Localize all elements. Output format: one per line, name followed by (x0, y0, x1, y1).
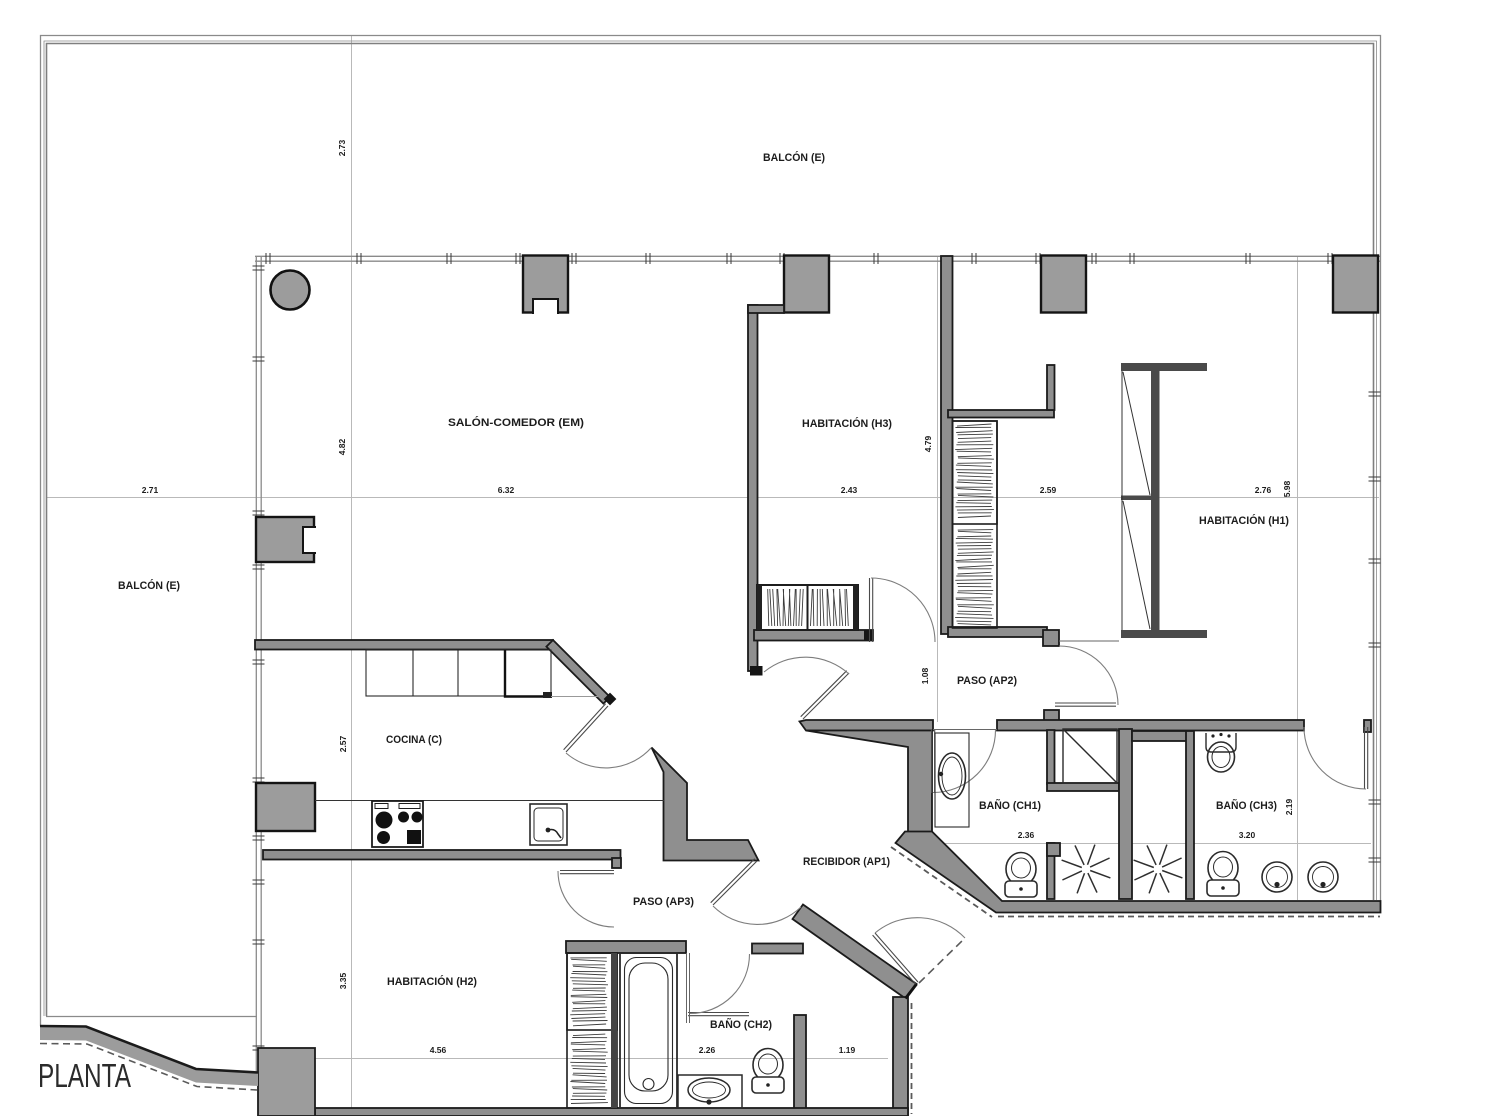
svg-text:PASO (AP3): PASO (AP3) (633, 896, 694, 908)
svg-text:4.56: 4.56 (430, 1045, 447, 1055)
svg-text:2.36: 2.36 (1018, 830, 1035, 840)
svg-text:1.19: 1.19 (839, 1045, 856, 1055)
svg-text:6.32: 6.32 (498, 485, 515, 495)
svg-text:PASO (AP2): PASO (AP2) (957, 675, 1017, 687)
svg-text:COCINA (C): COCINA (C) (386, 734, 442, 746)
svg-text:2.59: 2.59 (1040, 485, 1057, 495)
svg-text:2.76: 2.76 (1255, 485, 1272, 495)
svg-text:2.43: 2.43 (841, 485, 858, 495)
svg-text:2.57: 2.57 (338, 735, 348, 752)
svg-text:HABITACIÓN (H2): HABITACIÓN (H2) (387, 975, 477, 988)
svg-text:2.71: 2.71 (142, 485, 159, 495)
svg-text:2.73: 2.73 (337, 139, 347, 156)
svg-text:BALCÓN (E): BALCÓN (E) (763, 151, 825, 164)
svg-text:HABITACIÓN (H1): HABITACIÓN (H1) (1199, 514, 1289, 527)
svg-text:2.19: 2.19 (1284, 798, 1294, 815)
svg-text:BAÑO (CH1): BAÑO (CH1) (979, 799, 1041, 812)
svg-text:4.79: 4.79 (923, 435, 933, 452)
svg-text:BAÑO (CH2): BAÑO (CH2) (710, 1018, 772, 1031)
svg-text:1.08: 1.08 (920, 667, 930, 684)
svg-text:4.82: 4.82 (337, 438, 347, 455)
svg-text:BAÑO (CH3): BAÑO (CH3) (1216, 799, 1277, 812)
svg-text:3.35: 3.35 (338, 972, 348, 989)
svg-text:3.20: 3.20 (1239, 830, 1256, 840)
svg-text:2.26: 2.26 (699, 1045, 716, 1055)
svg-text:5.98: 5.98 (1282, 480, 1292, 497)
svg-text:PLANTA: PLANTA (38, 1057, 131, 1094)
svg-text:BALCÓN (E): BALCÓN (E) (118, 579, 180, 592)
svg-text:HABITACIÓN (H3): HABITACIÓN (H3) (802, 417, 892, 430)
svg-text:RECIBIDOR (AP1): RECIBIDOR (AP1) (803, 856, 890, 868)
svg-text:SALÓN-COMEDOR (EM): SALÓN-COMEDOR (EM) (448, 416, 584, 429)
